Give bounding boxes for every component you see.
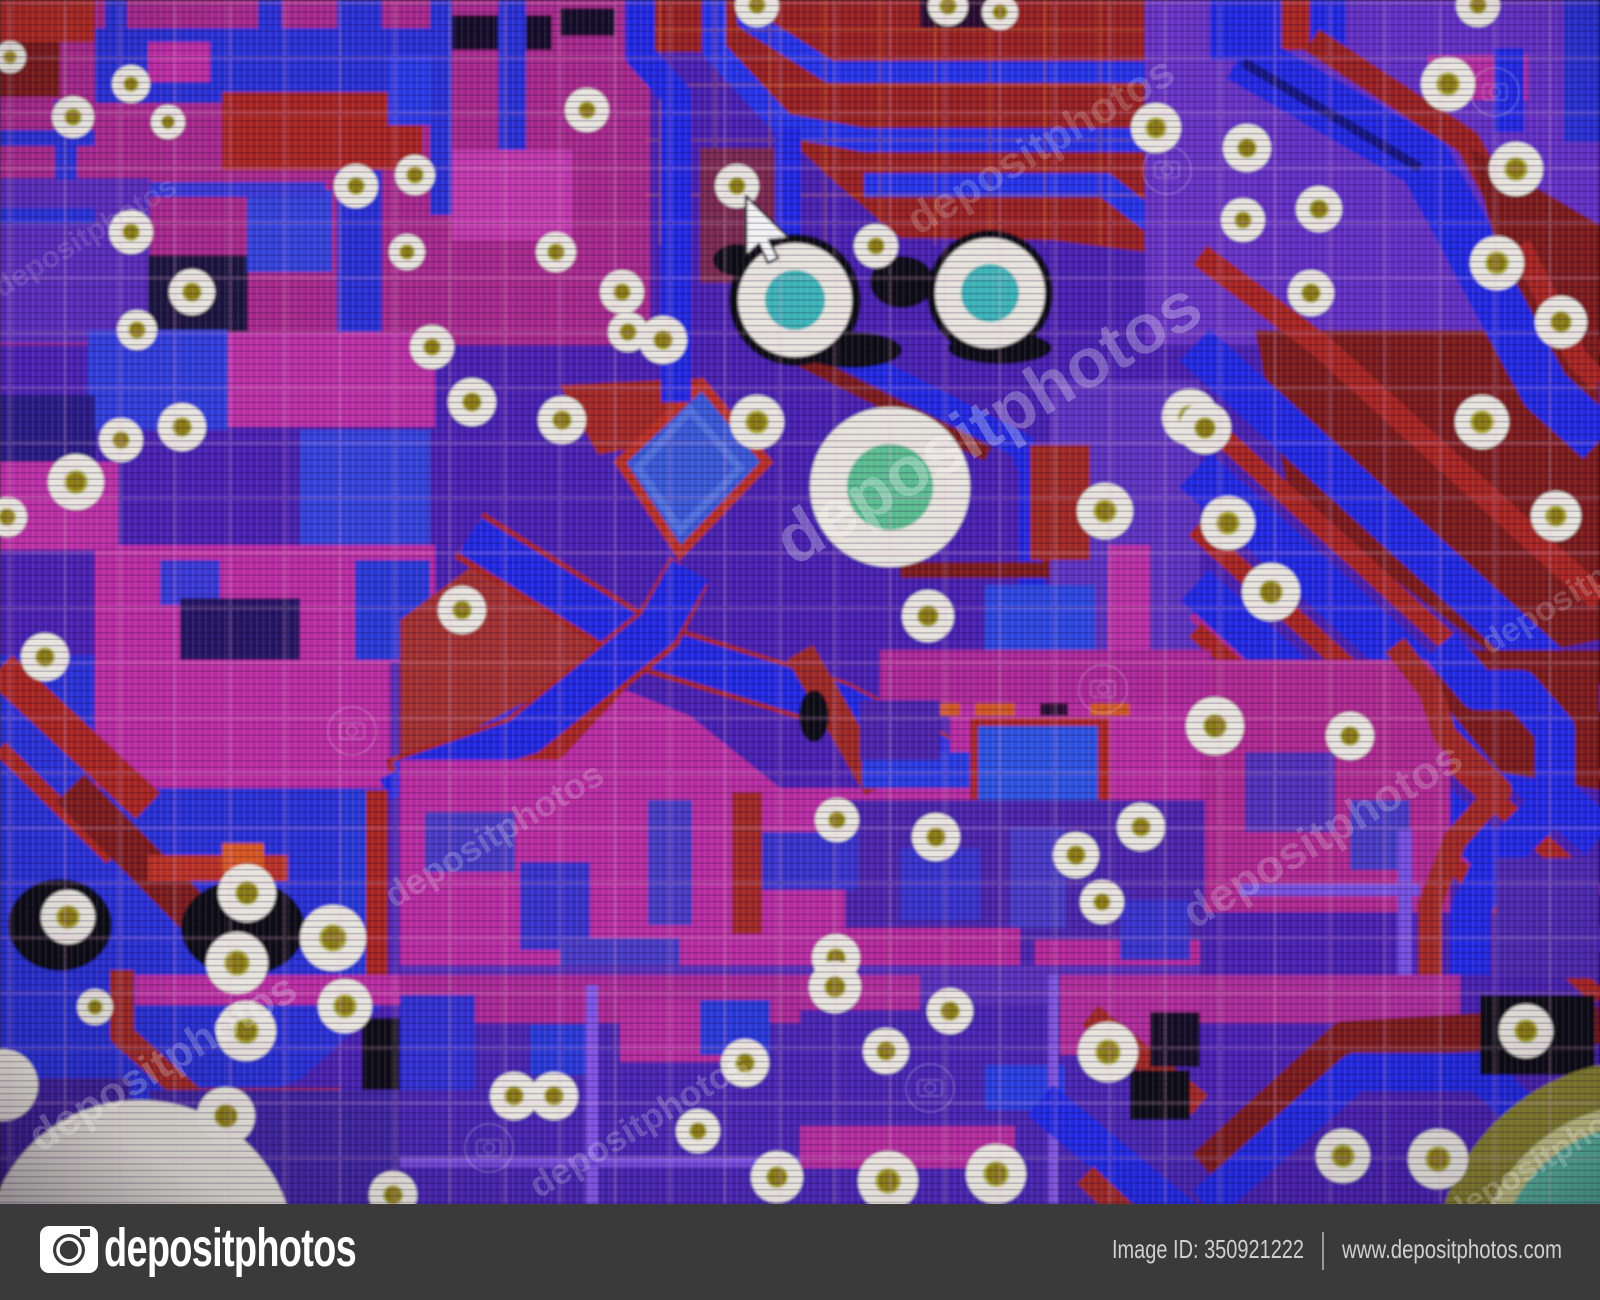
- svg-text:Image ID: 350921222: Image ID: 350921222: [1112, 1234, 1304, 1264]
- svg-text:www.depositphotos.com: www.depositphotos.com: [1341, 1234, 1562, 1264]
- svg-text:depositphotos: depositphotos: [104, 1218, 356, 1278]
